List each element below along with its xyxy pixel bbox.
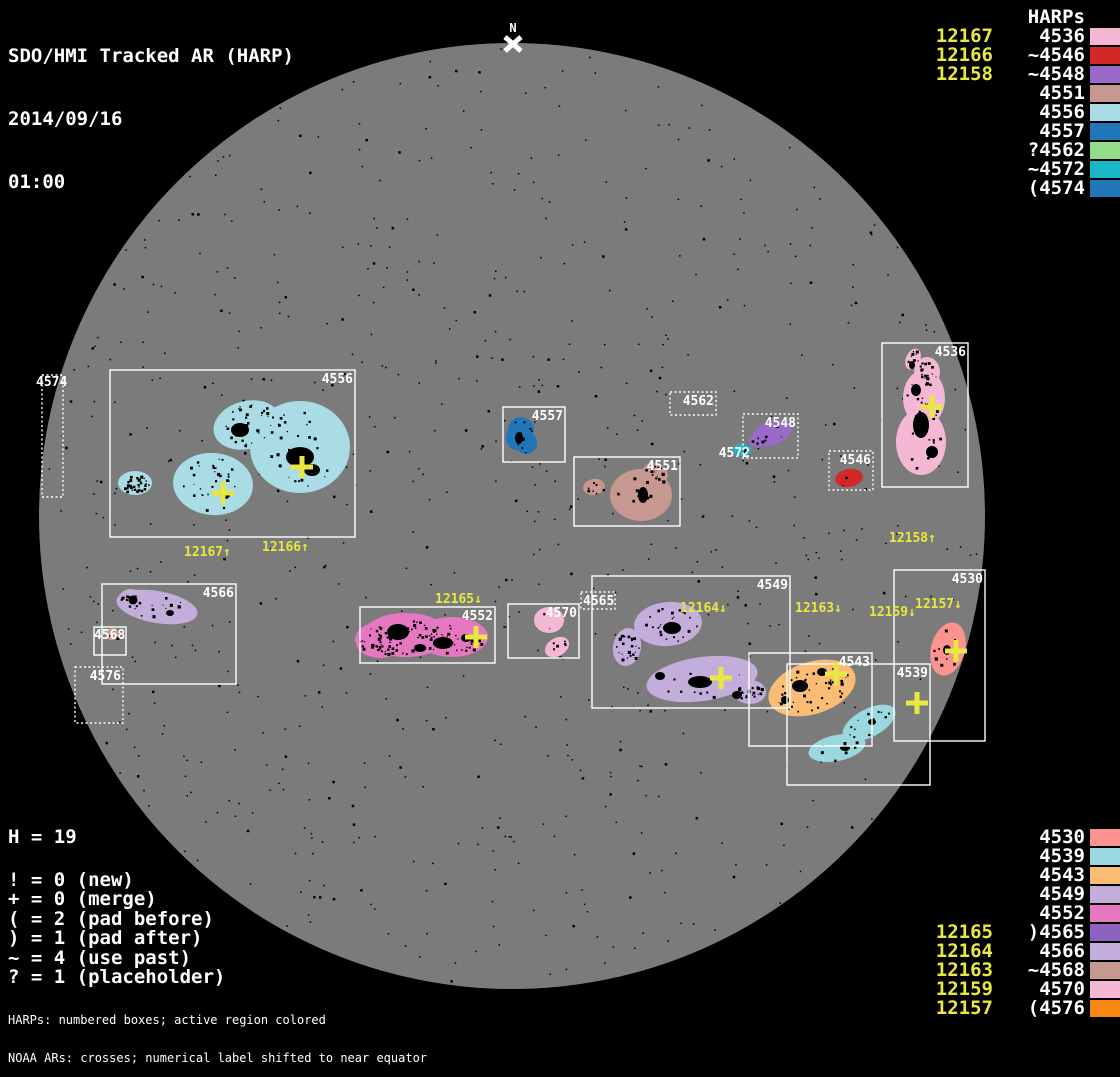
harp-box-label-4557: 4557 — [532, 409, 563, 424]
noaa-disk-label: 12167↑ — [184, 545, 231, 560]
noaa-disk-label: 12158↑ — [889, 531, 936, 546]
color-swatch — [1090, 905, 1120, 922]
color-swatch — [1090, 180, 1120, 197]
color-swatch — [1090, 867, 1120, 884]
color-swatch — [1090, 104, 1120, 121]
color-swatch — [1090, 47, 1120, 64]
harp-box-label-4556: 4556 — [322, 372, 353, 387]
stat-line: ? = 1 (placeholder) — [8, 968, 225, 987]
page-title: SDO/HMI Tracked AR (HARP) — [8, 46, 294, 67]
harp-box-label-4570: 4570 — [546, 606, 577, 621]
color-swatch — [1090, 123, 1120, 140]
time-label: 01:00 — [8, 172, 294, 193]
color-swatch — [1090, 886, 1120, 903]
noaa-disk-label: 12166↑ — [262, 540, 309, 555]
color-swatch — [1090, 28, 1120, 45]
harp-box-label-4566: 4566 — [203, 586, 234, 601]
harp-box-label-4546: 4546 — [840, 453, 871, 468]
harp-box-label-4574: 4574 — [36, 375, 67, 390]
legend-row: 12157(4576 — [878, 999, 1120, 1018]
noaa-disk-label: 12157↓ — [915, 597, 962, 612]
flag-legend: ! = 0 (new)+ = 0 (merge)( = 2 (pad befor… — [8, 871, 225, 987]
harp-box-label-4530: 4530 — [952, 572, 983, 587]
harp-box-label-4565: 4565 — [583, 594, 614, 609]
date-label: 2014/09/16 — [8, 109, 294, 130]
color-swatch — [1090, 848, 1120, 865]
noaa-ar-number: 12157 — [878, 999, 993, 1018]
harp-box-label-4549: 4549 — [757, 578, 788, 593]
stats-block: H = 19 ! = 0 (new)+ = 0 (merge)( = 2 (pa… — [8, 828, 225, 987]
noaa-disk-label: 12163↓ — [795, 601, 842, 616]
harp-count: H = 19 — [8, 828, 225, 847]
color-swatch — [1090, 142, 1120, 159]
legend-bottom-right: 4530453945434549455212165)45651216445661… — [878, 828, 1120, 1018]
harp-box-label-4576: 4576 — [90, 669, 121, 684]
harp-box-label-4551: 4551 — [647, 459, 678, 474]
harp-box-label-4543: 4543 — [839, 655, 870, 670]
color-swatch — [1090, 962, 1120, 979]
color-swatch — [1090, 85, 1120, 102]
noaa-disk-label: 12165↓ — [435, 592, 482, 607]
legend-row: (4574 — [878, 179, 1120, 198]
color-swatch — [1090, 924, 1120, 941]
harp-box-label-4568: 4568 — [94, 628, 125, 643]
color-swatch — [1090, 1000, 1120, 1017]
stat-line: ) = 1 (pad after) — [8, 929, 225, 948]
footer-line-harps: HARPs: numbered boxes; active region col… — [8, 1014, 427, 1027]
stat-line: + = 0 (merge) — [8, 890, 225, 909]
footer-line-noaa: NOAA ARs: crosses; numerical label shift… — [8, 1052, 427, 1065]
color-swatch — [1090, 981, 1120, 998]
north-marker: N — [505, 21, 521, 51]
title-block: SDO/HMI Tracked AR (HARP) 2014/09/16 01:… — [8, 4, 294, 214]
harp-box-label-4552: 4552 — [462, 609, 493, 624]
harp-box-label-4548: 4548 — [765, 416, 796, 431]
harp-box-label-4562: 4562 — [683, 394, 714, 409]
noaa-ar-number: 12158 — [878, 65, 993, 84]
color-swatch — [1090, 943, 1120, 960]
legend-top-right: NOAA ARs HARPs 12167453612166~454612158~… — [878, 8, 1120, 198]
harp-label-4572: 4572 — [719, 446, 750, 461]
harp-box-label-4539: 4539 — [897, 666, 928, 681]
footer-block: HARPs: numbered boxes; active region col… — [8, 989, 427, 1077]
swatch-spacer — [1090, 9, 1120, 26]
noaa-disk-label: 12164↓ — [680, 601, 727, 616]
color-swatch — [1090, 66, 1120, 83]
noaa-disk-label: 12159↓ — [869, 605, 916, 620]
color-swatch — [1090, 829, 1120, 846]
harp-box-label-4536: 4536 — [935, 345, 966, 360]
color-swatch — [1090, 161, 1120, 178]
north-label: N — [509, 21, 516, 35]
harp-number: (4576 — [993, 999, 1085, 1018]
harp-number: (4574 — [993, 179, 1085, 198]
